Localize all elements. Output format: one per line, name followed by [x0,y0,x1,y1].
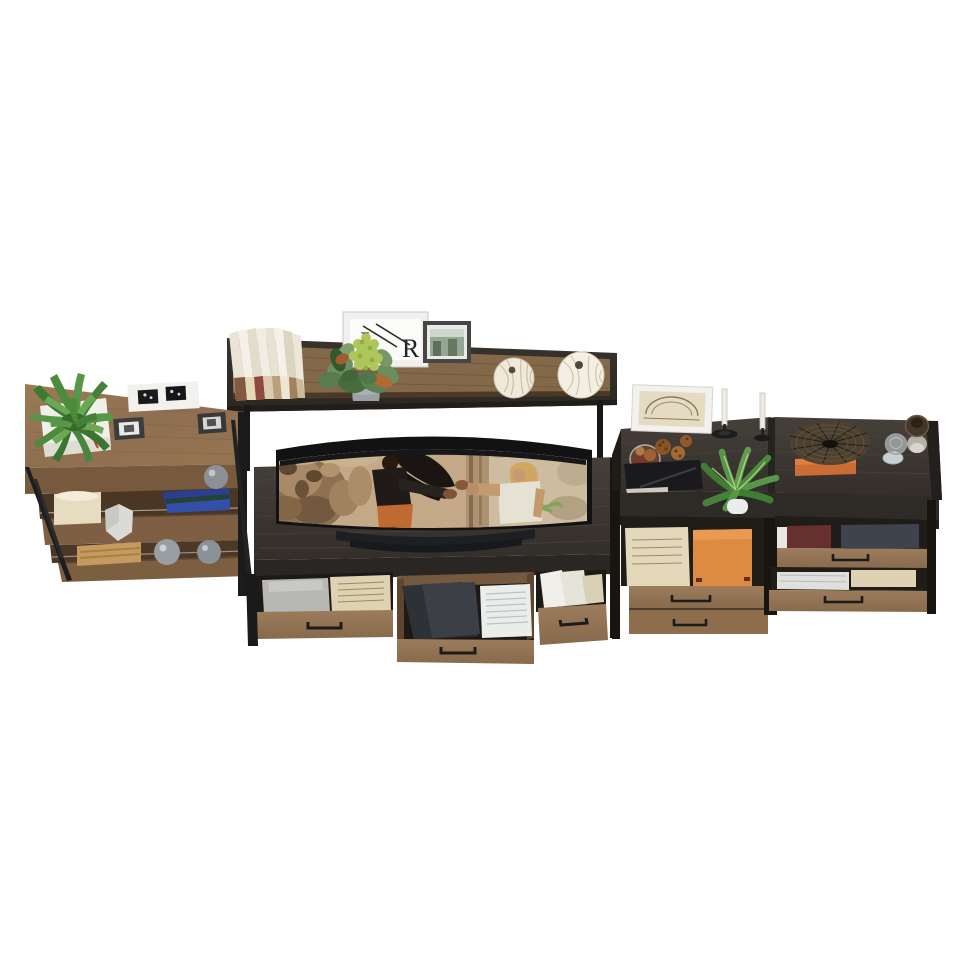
svg-text:R: R [402,334,420,363]
